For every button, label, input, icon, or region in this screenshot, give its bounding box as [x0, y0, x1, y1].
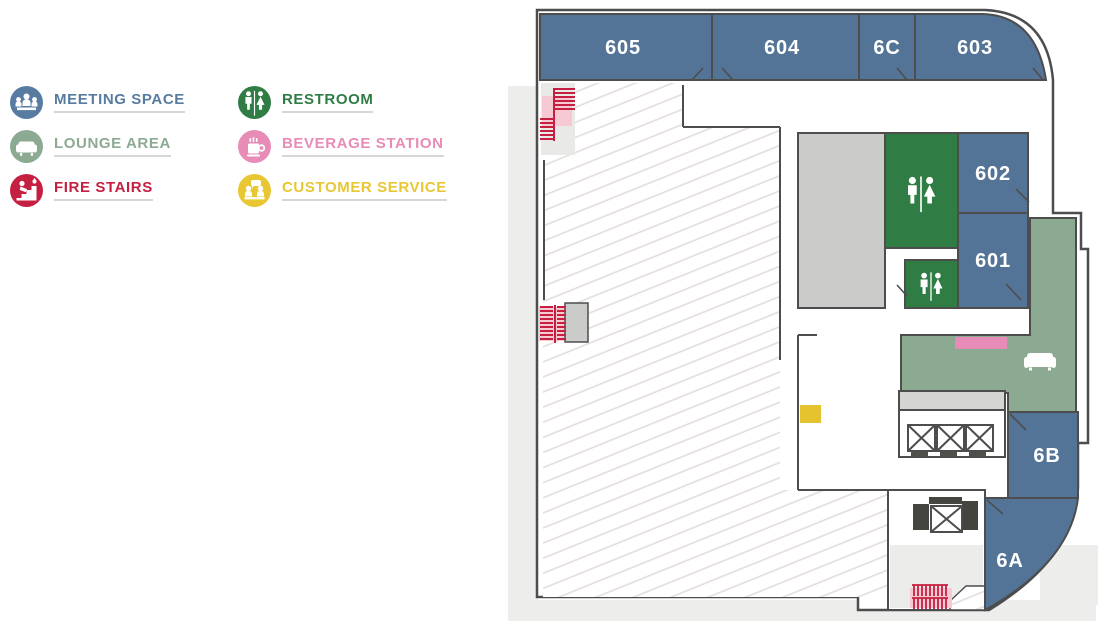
- legend-item-restroom: RESTROOM: [238, 86, 466, 119]
- room-label-601: 601: [975, 250, 1011, 272]
- legend-item-lounge-area: LOUNGE AREA: [10, 130, 238, 163]
- legend-item-meeting-space: MEETING SPACE: [10, 86, 238, 119]
- legend-label-restroom[interactable]: RESTROOM: [282, 92, 373, 114]
- customer-service-icon: [238, 174, 271, 207]
- pavement-bottom: [508, 600, 1096, 621]
- meeting-space-icon: [10, 86, 43, 119]
- service-strip: [899, 391, 1005, 410]
- room-label-6A: 6A: [996, 550, 1023, 572]
- room-label-604: 604: [764, 37, 800, 59]
- open-floor-hatch: [543, 490, 888, 597]
- legend-item-customer-service: CUSTOMER SERVICE: [238, 174, 466, 207]
- core-block: [798, 133, 885, 308]
- floor-plan-page: 605 604 6C 603 602 601 6B 6A MEETING SPA…: [0, 0, 1100, 625]
- room-label-603: 603: [957, 37, 993, 59]
- lounge-area-icon: [10, 130, 43, 163]
- pavement-left: [508, 86, 538, 621]
- fire-stairs-south: [910, 585, 952, 609]
- service-elevator: [931, 506, 962, 532]
- legend-item-fire-stairs: FIRE STAIRS: [10, 174, 238, 207]
- room-label-6B: 6B: [1033, 445, 1060, 467]
- elevator-bank: [908, 425, 993, 451]
- legend-label-meeting-space[interactable]: MEETING SPACE: [54, 92, 185, 114]
- room-label-605: 605: [605, 37, 641, 59]
- legend-label-lounge-area[interactable]: LOUNGE AREA: [54, 136, 171, 158]
- fire-stairs-west: [539, 303, 588, 343]
- room-label-602: 602: [975, 163, 1011, 185]
- legend-item-beverage-station: BEVERAGE STATION: [238, 130, 466, 163]
- customer-service-marker: [800, 405, 821, 423]
- beverage-station-icon: [238, 130, 271, 163]
- fire-stairs-icon: [10, 174, 43, 207]
- room-label-6C: 6C: [873, 37, 900, 59]
- open-floor-hatch: [575, 83, 683, 128]
- fire-stairs-northwest: [540, 83, 575, 155]
- restroom-icon: [238, 86, 271, 119]
- legend-label-beverage-station[interactable]: BEVERAGE STATION: [282, 136, 444, 158]
- beverage-station-marker: [955, 337, 1007, 349]
- legend: MEETING SPACE LOUNGE AREA: [10, 86, 466, 207]
- legend-label-customer-service[interactable]: CUSTOMER SERVICE: [282, 180, 447, 202]
- legend-label-fire-stairs[interactable]: FIRE STAIRS: [54, 180, 153, 202]
- elevator-door-marks: [911, 452, 986, 456]
